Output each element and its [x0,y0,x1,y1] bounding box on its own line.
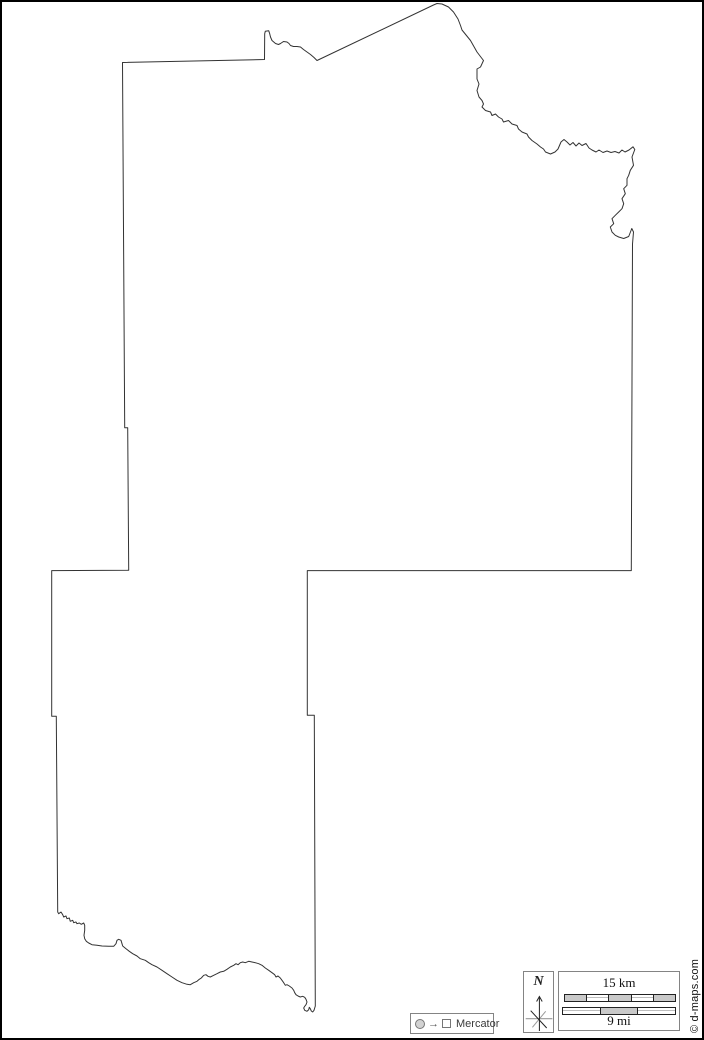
map-outline [2,2,704,1040]
projection-legend: → Mercator [410,1013,494,1034]
scale-segment-white [632,995,654,1001]
scale-segment-gray [654,995,675,1001]
projection-arrow-icon: → [428,1019,439,1029]
copyright-credit: © d-maps.com [689,959,701,1033]
globe-circle-icon [415,1019,425,1029]
scale-mi-label: 9 mi [559,1014,679,1028]
scale-bar-box: 15 km 9 mi [558,971,680,1031]
county-boundary-path [52,4,635,1013]
scale-segment-gray [565,995,587,1001]
km-scale-bar [564,994,676,1002]
compass-rose-icon [524,994,555,1032]
projection-label: Mercator [454,1018,499,1030]
map-page: → Mercator N 15 km 9 mi © d-maps.com [0,0,704,1040]
scale-segment-gray [609,995,631,1001]
projected-square-icon [442,1019,451,1028]
compass-box: N [523,971,554,1033]
scale-segment-white [587,995,609,1001]
compass-north-label: N [524,975,553,989]
scale-km-label: 15 km [559,976,679,990]
